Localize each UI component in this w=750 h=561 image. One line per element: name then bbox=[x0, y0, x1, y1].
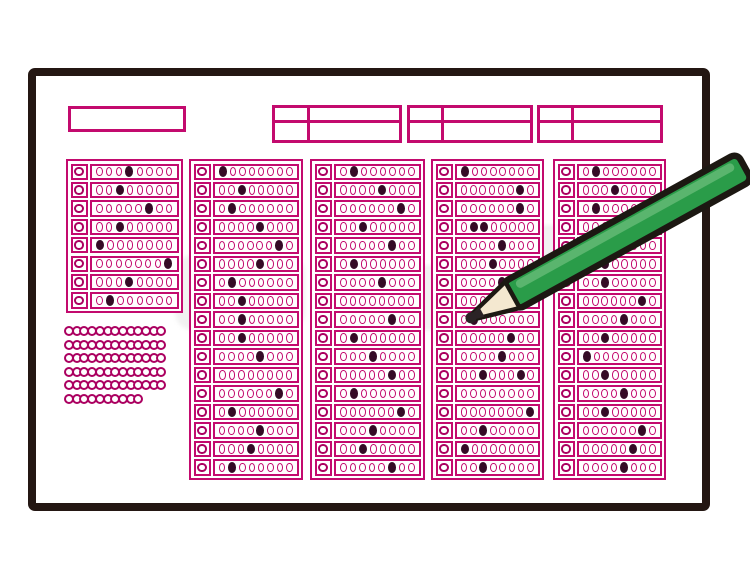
bubble bbox=[408, 204, 415, 214]
bubble-filled bbox=[350, 166, 358, 177]
answer-row bbox=[194, 200, 299, 216]
answer-block-1 bbox=[66, 159, 183, 313]
dot-circle-icon bbox=[156, 340, 166, 350]
dot-cluster-row bbox=[64, 380, 164, 390]
bubble-filled bbox=[145, 203, 153, 214]
bubble bbox=[408, 352, 415, 362]
bubble-filled bbox=[369, 425, 377, 436]
bubble bbox=[592, 278, 599, 288]
bubble bbox=[258, 407, 265, 417]
bubble bbox=[137, 185, 144, 195]
bubble bbox=[137, 167, 144, 177]
bubble bbox=[509, 167, 516, 177]
bubble bbox=[516, 407, 523, 417]
bubble bbox=[461, 259, 468, 269]
bubble-filled bbox=[583, 351, 591, 362]
bubble-filled bbox=[461, 166, 469, 177]
bubble bbox=[137, 240, 144, 250]
bubble bbox=[649, 278, 656, 288]
bubble bbox=[408, 278, 415, 288]
bubble bbox=[258, 278, 265, 288]
row-marker-circle-icon bbox=[197, 241, 207, 251]
bubble-cell bbox=[334, 311, 421, 327]
bubble bbox=[621, 167, 628, 177]
row-marker-circle-icon bbox=[318, 259, 328, 269]
row-marker-circle-icon bbox=[561, 444, 571, 454]
bubble-cell bbox=[577, 182, 662, 198]
bubble bbox=[640, 389, 647, 399]
bubble-cell bbox=[577, 441, 662, 457]
bubble bbox=[266, 241, 273, 251]
header-box-horizontal-divider bbox=[275, 120, 399, 123]
bubble bbox=[228, 185, 235, 195]
bubble-cell bbox=[455, 459, 540, 475]
bubble-cell bbox=[213, 404, 299, 420]
bubble bbox=[408, 241, 415, 251]
bubble bbox=[583, 185, 590, 195]
bubble bbox=[631, 241, 638, 251]
row-marker-circle-icon bbox=[197, 296, 207, 306]
bubble bbox=[389, 444, 396, 454]
bubble bbox=[340, 333, 347, 343]
bubble bbox=[640, 315, 647, 325]
header-box-vertical-divider bbox=[307, 108, 310, 140]
row-marker-circle-icon bbox=[318, 389, 328, 399]
row-marker-cell bbox=[436, 219, 453, 235]
bubble bbox=[470, 241, 477, 251]
bubble bbox=[508, 370, 515, 380]
row-marker-circle-icon bbox=[561, 222, 571, 232]
row-marker-cell bbox=[315, 330, 332, 346]
row-marker-circle-icon bbox=[439, 370, 449, 380]
bubble bbox=[277, 259, 284, 269]
row-marker-cell bbox=[558, 237, 575, 253]
bubble bbox=[527, 204, 534, 214]
bubble bbox=[369, 204, 376, 214]
answer-row bbox=[194, 293, 299, 309]
bubble-cell bbox=[455, 256, 540, 272]
answer-row bbox=[71, 182, 179, 198]
bubble-cell bbox=[90, 182, 179, 198]
bubble bbox=[518, 222, 525, 232]
bubble bbox=[286, 259, 293, 269]
bubble bbox=[408, 167, 415, 177]
answer-row bbox=[194, 459, 299, 475]
bubble bbox=[612, 333, 619, 343]
bubble-filled bbox=[228, 407, 236, 418]
row-marker-cell bbox=[558, 164, 575, 180]
row-marker-cell bbox=[436, 441, 453, 457]
bubble bbox=[640, 259, 647, 269]
bubble bbox=[370, 389, 377, 399]
bubble bbox=[481, 315, 488, 325]
row-marker-circle-icon bbox=[561, 315, 571, 325]
bubble bbox=[96, 167, 103, 177]
bubble-filled bbox=[238, 185, 246, 196]
bubble bbox=[370, 259, 377, 269]
bubble bbox=[249, 278, 256, 288]
bubble bbox=[601, 315, 608, 325]
bubble-filled bbox=[601, 370, 609, 381]
row-marker-cell bbox=[194, 441, 211, 457]
bubble bbox=[398, 296, 405, 306]
bubble bbox=[389, 222, 396, 232]
bubble bbox=[166, 240, 173, 250]
bubble bbox=[527, 241, 534, 251]
bubble bbox=[388, 296, 395, 306]
bubble bbox=[350, 407, 357, 417]
bubble bbox=[156, 240, 163, 250]
bubble bbox=[135, 259, 142, 269]
bubble bbox=[156, 222, 163, 232]
bubble bbox=[286, 426, 293, 436]
bubble bbox=[146, 185, 153, 195]
bubble bbox=[470, 333, 477, 343]
bubble bbox=[267, 259, 274, 269]
bubble bbox=[583, 167, 590, 177]
bubble bbox=[127, 222, 134, 232]
bubble bbox=[106, 167, 113, 177]
bubble-filled bbox=[388, 462, 396, 473]
bubble bbox=[399, 389, 406, 399]
row-marker-cell bbox=[194, 237, 211, 253]
bubble bbox=[479, 259, 486, 269]
bubble bbox=[489, 185, 496, 195]
row-marker-circle-icon bbox=[318, 444, 328, 454]
bubble bbox=[238, 259, 245, 269]
bubble bbox=[219, 222, 226, 232]
bubble-cell bbox=[334, 164, 421, 180]
bubble bbox=[106, 259, 113, 269]
bubble bbox=[350, 370, 357, 380]
bubble-cell bbox=[334, 330, 421, 346]
row-marker-circle-icon bbox=[197, 352, 207, 362]
bubble bbox=[527, 185, 534, 195]
row-marker-cell bbox=[194, 274, 211, 290]
bubble bbox=[649, 444, 656, 454]
bubble bbox=[359, 426, 366, 436]
row-marker-circle-icon bbox=[561, 463, 571, 473]
bubble bbox=[621, 185, 628, 195]
bubble bbox=[649, 407, 656, 417]
header-box-horizontal-divider bbox=[410, 120, 530, 123]
bubble bbox=[228, 352, 235, 362]
bubble bbox=[498, 185, 505, 195]
bubble bbox=[107, 240, 114, 250]
bubble bbox=[461, 241, 468, 251]
bubble bbox=[228, 444, 235, 454]
bubble bbox=[489, 296, 496, 306]
bubble bbox=[479, 333, 486, 343]
bubble bbox=[631, 370, 638, 380]
answer-row bbox=[436, 367, 540, 383]
bubble bbox=[611, 241, 618, 251]
bubble-filled bbox=[219, 166, 227, 177]
bubble bbox=[247, 352, 254, 362]
bubble bbox=[247, 389, 254, 399]
bubble-filled bbox=[238, 314, 246, 325]
row-marker-cell bbox=[194, 219, 211, 235]
bubble bbox=[389, 259, 396, 269]
row-marker-cell bbox=[558, 182, 575, 198]
bubble bbox=[461, 222, 468, 232]
bubble bbox=[489, 370, 496, 380]
bubble bbox=[96, 277, 103, 287]
bubble bbox=[166, 277, 173, 287]
bubble bbox=[508, 389, 515, 399]
bubble bbox=[219, 389, 226, 399]
row-marker-cell bbox=[436, 385, 453, 401]
bubble bbox=[238, 444, 245, 454]
bubble bbox=[499, 296, 506, 306]
answer-row bbox=[315, 404, 421, 420]
row-marker-circle-icon bbox=[318, 241, 328, 251]
row-marker-cell bbox=[315, 200, 332, 216]
bubble-cell bbox=[213, 330, 299, 346]
bubble bbox=[489, 204, 496, 214]
answer-block-2 bbox=[189, 159, 303, 480]
row-marker-cell bbox=[558, 219, 575, 235]
answer-row bbox=[558, 256, 662, 272]
bubble bbox=[238, 222, 245, 232]
answer-row bbox=[194, 182, 299, 198]
bubble bbox=[509, 278, 516, 288]
answer-row bbox=[436, 293, 540, 309]
bubble bbox=[518, 241, 525, 251]
row-marker-circle-icon bbox=[439, 259, 449, 269]
bubble bbox=[238, 241, 245, 251]
bubble bbox=[611, 222, 618, 232]
row-marker-cell bbox=[315, 274, 332, 290]
bubble bbox=[479, 185, 486, 195]
bubble-cell bbox=[577, 459, 662, 475]
bubble-cell bbox=[334, 200, 421, 216]
row-marker-cell bbox=[436, 330, 453, 346]
bubble bbox=[461, 370, 468, 380]
row-marker-circle-icon bbox=[318, 204, 328, 214]
bubble bbox=[219, 204, 226, 214]
row-marker-circle-icon bbox=[318, 315, 328, 325]
answer-row bbox=[558, 367, 662, 383]
bubble bbox=[592, 426, 599, 436]
bubble bbox=[592, 389, 599, 399]
bubble bbox=[601, 426, 608, 436]
bubble bbox=[258, 463, 265, 473]
bubble bbox=[249, 407, 256, 417]
bubble-filled bbox=[397, 407, 405, 418]
answer-row bbox=[558, 459, 662, 475]
bubble bbox=[389, 389, 396, 399]
bubble bbox=[359, 185, 366, 195]
row-marker-circle-icon bbox=[318, 185, 328, 195]
row-marker-circle-icon bbox=[318, 407, 328, 417]
bubble bbox=[399, 259, 406, 269]
bubble bbox=[369, 463, 376, 473]
bubble bbox=[601, 463, 608, 473]
bubble bbox=[350, 278, 357, 288]
row-marker-circle-icon bbox=[439, 241, 449, 251]
answer-row bbox=[558, 441, 662, 457]
bubble bbox=[156, 296, 163, 306]
bubble bbox=[518, 315, 525, 325]
bubble bbox=[461, 389, 468, 399]
bubble bbox=[378, 463, 385, 473]
bubble-filled bbox=[489, 259, 497, 270]
bubble-cell bbox=[213, 182, 299, 198]
bubble bbox=[219, 315, 226, 325]
bubble bbox=[479, 204, 486, 214]
bubble bbox=[527, 278, 534, 288]
row-marker-cell bbox=[436, 311, 453, 327]
bubble-filled bbox=[275, 388, 283, 399]
bubble bbox=[96, 222, 103, 232]
bubble-cell bbox=[213, 367, 299, 383]
row-marker-circle-icon bbox=[439, 389, 449, 399]
row-marker-circle-icon bbox=[561, 407, 571, 417]
bubble bbox=[286, 241, 293, 251]
bubble-filled bbox=[388, 240, 396, 251]
bubble bbox=[583, 370, 590, 380]
bubble bbox=[603, 204, 610, 214]
bubble bbox=[286, 185, 293, 195]
bubble bbox=[286, 204, 293, 214]
row-marker-cell bbox=[315, 422, 332, 438]
row-marker-cell bbox=[194, 404, 211, 420]
bubble bbox=[340, 296, 347, 306]
bubble-filled bbox=[116, 222, 124, 233]
answer-block-5 bbox=[553, 159, 666, 480]
bubble bbox=[583, 296, 590, 306]
dot-cluster-row bbox=[64, 326, 164, 336]
bubble bbox=[116, 167, 123, 177]
bubble bbox=[277, 222, 284, 232]
bubble bbox=[629, 426, 636, 436]
bubble bbox=[389, 333, 396, 343]
bubble-filled bbox=[629, 444, 637, 455]
answer-row bbox=[558, 219, 662, 235]
bubble-cell bbox=[334, 219, 421, 235]
row-marker-circle-icon bbox=[318, 463, 328, 473]
bubble bbox=[286, 370, 293, 380]
bubble bbox=[649, 426, 656, 436]
bubble bbox=[470, 296, 477, 306]
bubble bbox=[640, 407, 647, 417]
bubble bbox=[380, 333, 387, 343]
row-marker-circle-icon bbox=[318, 222, 328, 232]
bubble-filled bbox=[228, 277, 236, 288]
bubble bbox=[267, 296, 274, 306]
row-marker-cell bbox=[194, 256, 211, 272]
row-marker-circle-icon bbox=[197, 426, 207, 436]
answer-row bbox=[315, 200, 421, 216]
bubble bbox=[640, 352, 647, 362]
bubble-filled bbox=[256, 425, 264, 436]
bubble bbox=[479, 407, 486, 417]
bubble bbox=[399, 315, 406, 325]
bubble bbox=[340, 241, 347, 251]
answer-row bbox=[436, 422, 540, 438]
row-marker-cell bbox=[194, 330, 211, 346]
answer-row bbox=[315, 367, 421, 383]
bubble bbox=[267, 222, 274, 232]
bubble bbox=[640, 204, 647, 214]
bubble bbox=[249, 167, 256, 177]
bubble bbox=[611, 315, 618, 325]
bubble bbox=[116, 259, 123, 269]
bubble bbox=[461, 278, 468, 288]
row-marker-cell bbox=[436, 274, 453, 290]
bubble-filled bbox=[164, 258, 172, 269]
row-marker-cell bbox=[315, 237, 332, 253]
bubble bbox=[369, 407, 376, 417]
bubble bbox=[611, 444, 618, 454]
bubble bbox=[490, 444, 497, 454]
row-marker-cell bbox=[315, 311, 332, 327]
bubble bbox=[219, 426, 226, 436]
bubble bbox=[592, 315, 599, 325]
bubble bbox=[286, 463, 293, 473]
bubble bbox=[621, 333, 628, 343]
bubble bbox=[359, 204, 366, 214]
bubble-filled bbox=[611, 185, 619, 196]
row-marker-cell bbox=[71, 182, 88, 198]
bubble-cell bbox=[455, 164, 540, 180]
row-marker-cell bbox=[558, 422, 575, 438]
bubble bbox=[620, 444, 627, 454]
bubble-cell bbox=[90, 292, 179, 308]
bubble bbox=[267, 278, 274, 288]
bubble bbox=[135, 204, 142, 214]
bubble bbox=[399, 444, 406, 454]
bubble bbox=[612, 167, 619, 177]
bubble bbox=[146, 296, 153, 306]
bubble-cell bbox=[455, 219, 540, 235]
answer-row bbox=[436, 404, 540, 420]
bubble-cell bbox=[455, 367, 540, 383]
bubble bbox=[479, 278, 486, 288]
bubble bbox=[267, 315, 274, 325]
bubble bbox=[583, 259, 590, 269]
bubble-filled bbox=[601, 277, 609, 288]
bubble bbox=[499, 167, 506, 177]
bubble bbox=[277, 278, 284, 288]
bubble bbox=[399, 185, 406, 195]
bubble bbox=[219, 333, 226, 343]
bubble bbox=[621, 407, 628, 417]
row-marker-cell bbox=[558, 441, 575, 457]
row-marker-circle-icon bbox=[74, 277, 84, 287]
row-marker-circle-icon bbox=[74, 167, 84, 177]
answer-row bbox=[194, 385, 299, 401]
row-marker-circle-icon bbox=[439, 204, 449, 214]
bubble bbox=[518, 259, 525, 269]
bubble bbox=[378, 407, 385, 417]
answer-row bbox=[71, 219, 179, 235]
bubble bbox=[470, 407, 477, 417]
bubble-cell bbox=[577, 200, 662, 216]
bubble-filled bbox=[106, 295, 114, 306]
row-marker-circle-icon bbox=[197, 315, 207, 325]
row-marker-circle-icon bbox=[561, 259, 571, 269]
bubble bbox=[461, 407, 468, 417]
answer-row bbox=[436, 256, 540, 272]
bubble bbox=[509, 426, 516, 436]
answer-row bbox=[436, 385, 540, 401]
answer-row bbox=[558, 274, 662, 290]
bubble bbox=[277, 296, 284, 306]
bubble bbox=[166, 222, 173, 232]
bubble bbox=[388, 204, 395, 214]
